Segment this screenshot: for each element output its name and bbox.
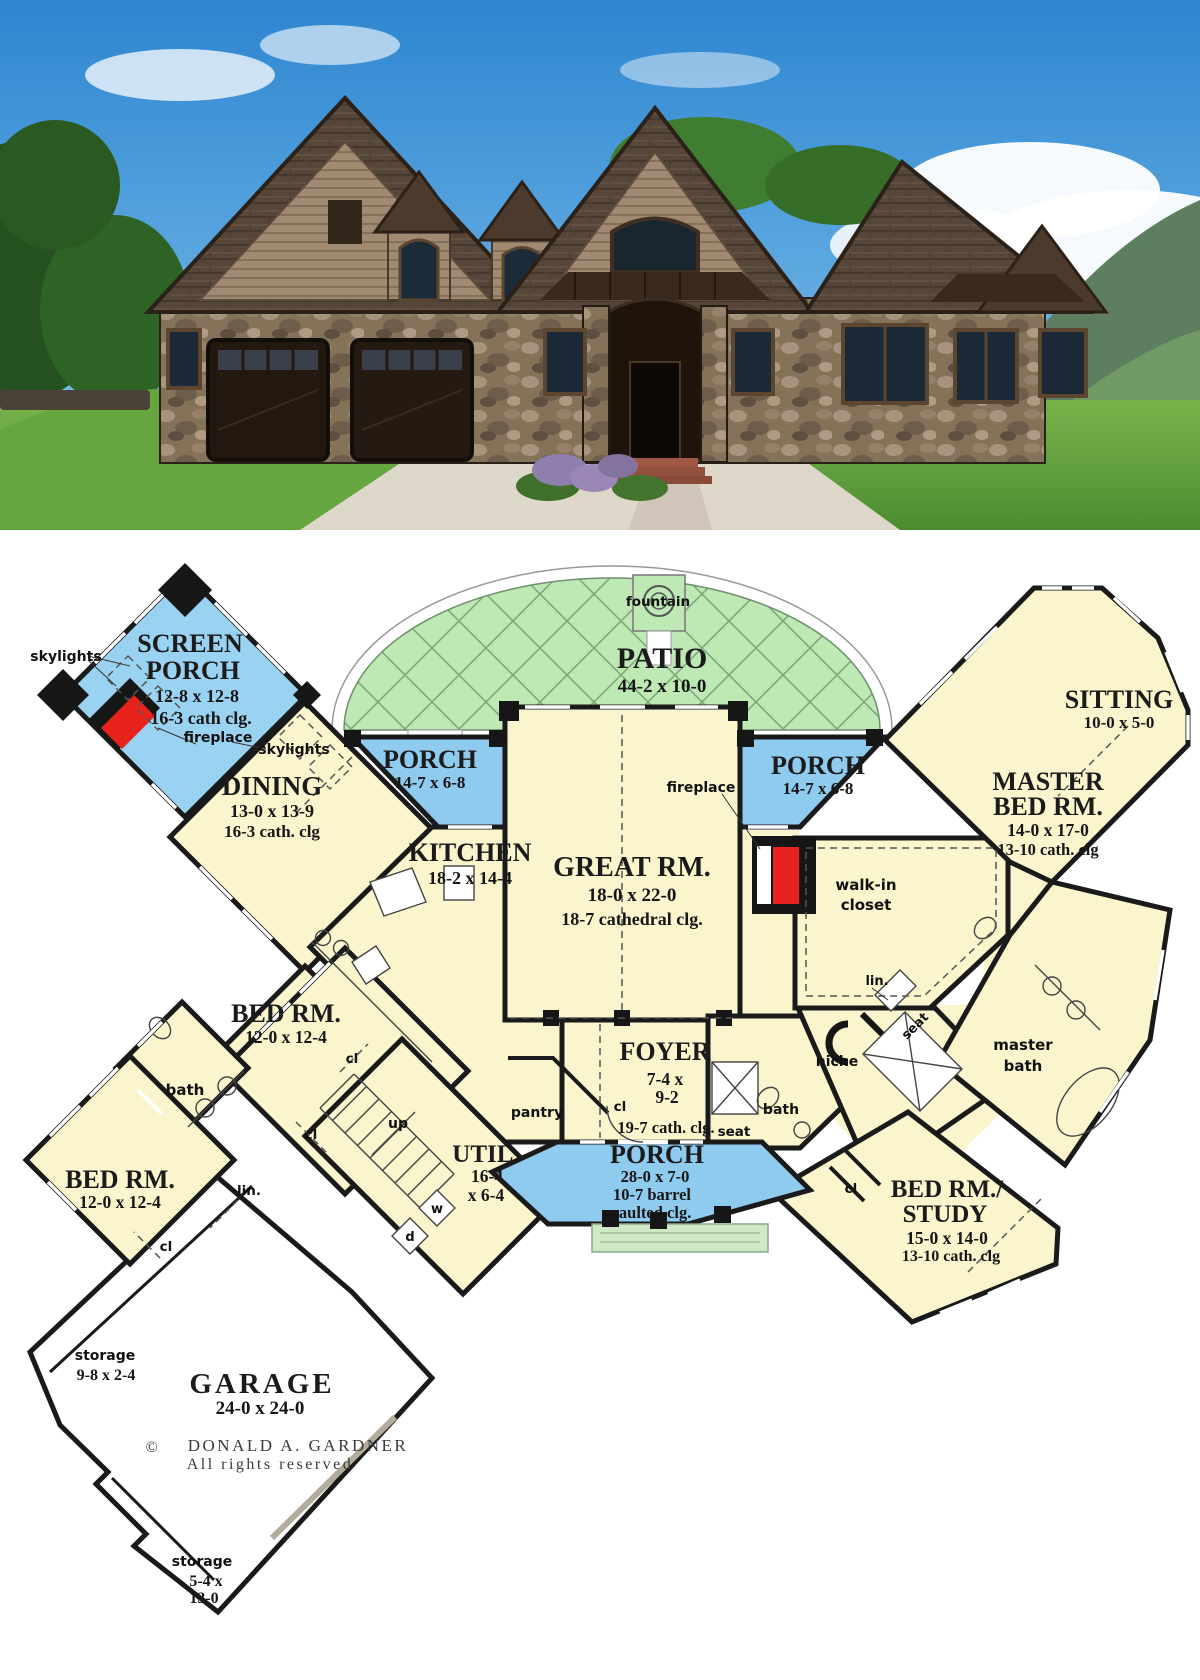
storage2-name: storage bbox=[172, 1554, 233, 1570]
attic-vent bbox=[328, 200, 362, 244]
sitting-dim: 10-0 x 5-0 bbox=[1084, 713, 1155, 732]
porch-left-name: PORCH bbox=[383, 745, 477, 774]
porch-front-dim: 28-0 x 7-0 bbox=[621, 1167, 690, 1186]
seat-foyer-label: seat bbox=[718, 1124, 751, 1140]
bath-right-label: bath bbox=[763, 1102, 799, 1118]
fireplace-screen-label: fireplace bbox=[184, 730, 253, 746]
house-plan-page: SCREEN PORCH 12-8 x 12-8 16-3 cath clg. … bbox=[0, 0, 1200, 1680]
porch-right-name: PORCH bbox=[771, 751, 865, 780]
foyer-name: FOYER bbox=[620, 1037, 711, 1066]
cl-label-5: cl bbox=[845, 1181, 858, 1197]
lin-left-label: lin. bbox=[237, 1183, 261, 1199]
niche-label: niche bbox=[816, 1054, 859, 1070]
lin-right-label: lin. bbox=[865, 974, 888, 989]
garage-dim: 24-0 x 24-0 bbox=[216, 1398, 305, 1419]
walkin-label-2: closet bbox=[841, 896, 892, 914]
cl-label-2: cl bbox=[305, 1127, 318, 1143]
foyer-dim-1: 7-4 x bbox=[647, 1069, 684, 1089]
cl-label-3: cl bbox=[160, 1239, 173, 1255]
plan-canvas: SCREEN PORCH 12-8 x 12-8 16-3 cath clg. … bbox=[0, 0, 1200, 1680]
storage2-dim-2: 13-0 bbox=[189, 1590, 218, 1607]
bed1-name: BED RM. bbox=[231, 999, 341, 1028]
bed2-name: BED RM. bbox=[65, 1165, 175, 1194]
copyright-line-2: All rights reserved bbox=[187, 1456, 354, 1473]
floor-plan: SCREEN PORCH 12-8 x 12-8 16-3 cath clg. … bbox=[26, 563, 1188, 1612]
entry-porch bbox=[583, 299, 727, 484]
patio-dim: 44-2 x 10-0 bbox=[618, 676, 707, 697]
garage-name: GARAGE bbox=[189, 1368, 334, 1400]
porch-left-dim: 14-7 x 6-8 bbox=[395, 773, 466, 792]
master-bath-label-2: bath bbox=[1004, 1057, 1043, 1075]
great-room-clg: 18-7 cathedral clg. bbox=[561, 909, 702, 929]
dormer-left-window bbox=[400, 240, 438, 300]
fireplace-great-label: fireplace bbox=[667, 780, 736, 796]
stone-retaining-wall bbox=[0, 390, 150, 410]
porch-right-dim: 14-7 x 6-8 bbox=[783, 779, 854, 798]
master-dim: 14-0 x 17-0 bbox=[1007, 820, 1089, 840]
front-door bbox=[630, 362, 680, 460]
porch-front-name: PORCH bbox=[610, 1140, 704, 1169]
foyer-dim-2: 9-2 bbox=[655, 1087, 678, 1107]
porch-front-clg-1: 10-7 barrel bbox=[613, 1185, 691, 1204]
skylights-right-label: skylights bbox=[258, 742, 329, 758]
walkin-label-1: walk-in bbox=[835, 876, 896, 894]
house-photo bbox=[0, 0, 1200, 530]
skylights-left-label: skylights bbox=[30, 649, 101, 665]
gable-arched-window bbox=[612, 219, 698, 273]
study-dim: 15-0 x 14-0 bbox=[906, 1228, 988, 1248]
screen-porch-name-1: SCREEN bbox=[137, 629, 243, 658]
util-dim-2: x 6-4 bbox=[468, 1185, 505, 1205]
dining-clg: 16-3 cath. clg bbox=[224, 822, 320, 841]
study-name-1: BED RM./ bbox=[891, 1176, 1005, 1203]
great-room-dim: 18-0 x 22-0 bbox=[588, 885, 677, 906]
copyright-symbol: © bbox=[146, 1439, 161, 1456]
bed2-dim: 12-0 x 12-4 bbox=[79, 1192, 161, 1212]
cl-label-4: cl bbox=[614, 1099, 627, 1115]
fountain-label: fountain bbox=[626, 594, 690, 610]
study-name-2: STUDY bbox=[903, 1201, 988, 1228]
washer-label: w bbox=[431, 1202, 443, 1217]
bath-left-label: bath bbox=[166, 1081, 205, 1099]
bed1-dim: 12-0 x 12-4 bbox=[245, 1027, 327, 1047]
storage2-dim-1: 5-4 x bbox=[189, 1573, 222, 1590]
dining-dim: 13-0 x 13-9 bbox=[230, 801, 314, 821]
pantry-label: pantry bbox=[511, 1105, 563, 1121]
util-dim-1: 16-4 bbox=[471, 1166, 503, 1186]
storage1-dim: 9-8 x 2-4 bbox=[77, 1367, 136, 1384]
util-name: UTIL. bbox=[452, 1141, 519, 1168]
patio-name: PATIO bbox=[617, 642, 708, 675]
great-room-name: GREAT RM. bbox=[553, 852, 711, 883]
front-steps bbox=[592, 1224, 768, 1252]
screen-porch-clg: 16-3 cath clg. bbox=[150, 708, 251, 728]
master-name-2: BED RM. bbox=[993, 792, 1103, 821]
dining-name: DINING bbox=[222, 771, 323, 801]
sitting-name: SITTING bbox=[1065, 685, 1173, 714]
study-clg: 13-10 cath. clg bbox=[902, 1248, 1000, 1265]
screen-porch-name-2: PORCH bbox=[146, 656, 240, 685]
master-clg: 13-10 cath. clg bbox=[997, 840, 1099, 859]
dryer-label: d bbox=[405, 1230, 414, 1245]
up-label: up bbox=[388, 1116, 408, 1132]
master-bath-label-1: master bbox=[993, 1036, 1053, 1054]
screen-porch-dim: 12-8 x 12-8 bbox=[155, 686, 239, 706]
copyright-line-1: DONALD A. GARDNER bbox=[188, 1436, 409, 1455]
porch-front-clg-2: vaulted clg. bbox=[611, 1203, 692, 1222]
kitchen-name: KITCHEN bbox=[409, 838, 532, 867]
foyer-clg: 19-7 cath. clg. bbox=[617, 1118, 714, 1137]
kitchen-dim: 18-2 x 14-4 bbox=[428, 868, 512, 888]
storage1-name: storage bbox=[75, 1348, 136, 1364]
cl-label-1: cl bbox=[346, 1051, 359, 1067]
